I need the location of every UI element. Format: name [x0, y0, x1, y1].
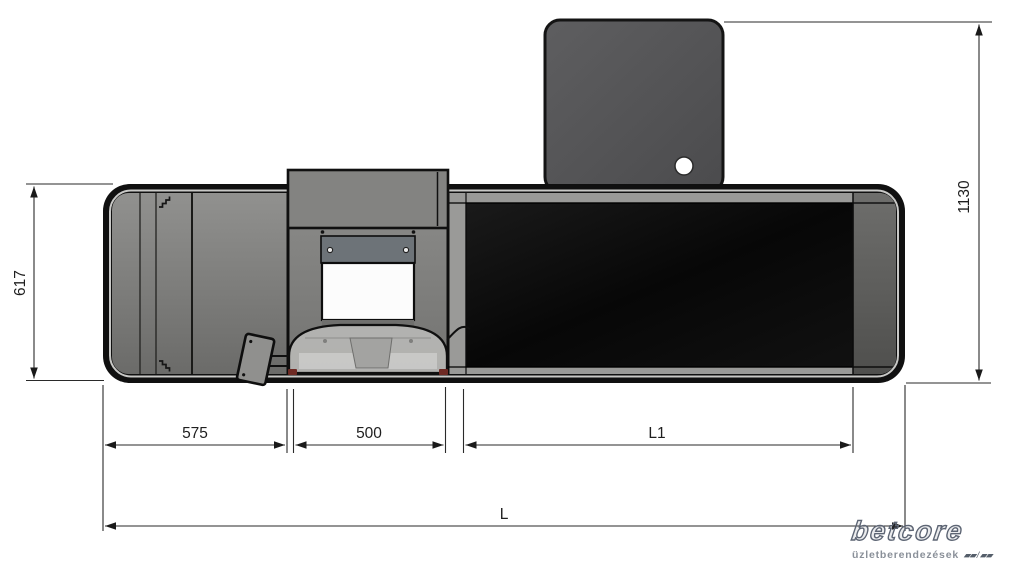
dim-label-L: L: [500, 506, 509, 523]
rear-sign-panel: [545, 20, 723, 192]
dim-label-617: 617: [12, 270, 29, 296]
technical-drawing-canvas: 617 1130 575 500 L1 L: [0, 0, 1012, 562]
ticket-window: [322, 263, 414, 320]
dim-label-L1: L1: [648, 425, 665, 442]
foot-right: [439, 369, 448, 375]
betcore-logo: betcore üzletberendezések ▰▰ / ▰▰: [852, 518, 1008, 562]
right-end-cap: [853, 193, 898, 374]
panel-hole: [675, 157, 693, 175]
screw-hole-right: [403, 247, 408, 252]
dim-label-500: 500: [356, 425, 382, 442]
dim-label-575: 575: [182, 425, 208, 442]
display-screen: [466, 203, 853, 367]
logo-slash-marks-icon: ▰▰ / ▰▰: [963, 550, 991, 560]
dim-label-1130: 1130: [956, 180, 973, 214]
counter-body: [103, 184, 905, 383]
logo-wordmark: betcore: [850, 518, 965, 545]
dimension-617: [26, 184, 113, 381]
drawing-page: 617 1130 575 500 L1 L betcore: [0, 0, 1012, 562]
foot-left: [288, 369, 297, 375]
logo-tagline: üzletberendezések: [852, 549, 959, 561]
screw-hole-left: [327, 247, 332, 252]
printer-box: [288, 170, 448, 228]
